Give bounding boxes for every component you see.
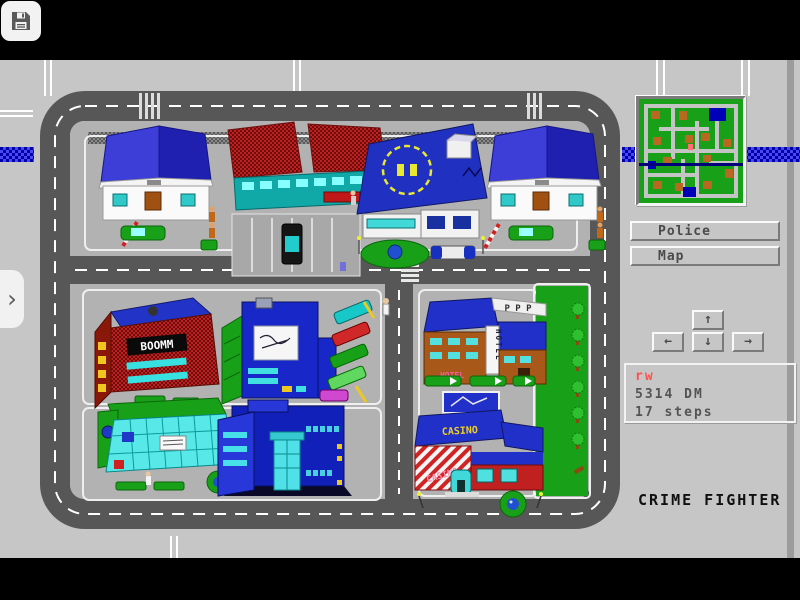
save-button[interactable] bbox=[1, 1, 41, 41]
road-exit-line bbox=[663, 60, 665, 96]
game-screen: BOOMM bbox=[0, 60, 800, 558]
road-exit-line bbox=[0, 115, 33, 117]
save-icon bbox=[9, 9, 33, 33]
money-amount: 5314 DM bbox=[635, 386, 785, 404]
road-exit-line bbox=[748, 60, 750, 96]
game-window: BOOMM bbox=[0, 0, 800, 600]
police-car bbox=[431, 246, 475, 259]
move-down-button[interactable]: ↓ bbox=[692, 332, 724, 352]
minimap-stripe bbox=[639, 163, 743, 166]
game-title: CRIME FIGHTER bbox=[638, 491, 781, 509]
player-name: rw bbox=[635, 368, 785, 386]
casino-roof-sign: CASINO bbox=[442, 425, 479, 438]
street-arrows bbox=[425, 376, 535, 386]
crosswalk bbox=[527, 93, 542, 119]
minimap bbox=[636, 96, 746, 206]
map-button[interactable]: Map bbox=[630, 246, 780, 266]
move-left-button[interactable]: ← bbox=[652, 332, 684, 352]
step-counter: 17 steps bbox=[635, 404, 785, 422]
pedestrian bbox=[351, 191, 357, 206]
pedestrian bbox=[383, 298, 389, 315]
minimap-canvas bbox=[639, 99, 743, 203]
park bbox=[536, 286, 588, 496]
bezel-shade bbox=[787, 60, 794, 558]
blue-stripe bbox=[0, 147, 34, 162]
building-police-station bbox=[357, 124, 487, 268]
road-exit-line bbox=[656, 60, 658, 96]
parking-roof-sign: P P P bbox=[504, 304, 532, 314]
move-up-button[interactable]: ↑ bbox=[692, 310, 724, 330]
sidebar-toggle[interactable]: › bbox=[0, 270, 24, 328]
city-map: BOOMM bbox=[33, 76, 625, 540]
chevron-right-icon: › bbox=[7, 285, 17, 313]
status-panel: rw 5314 DM 17 steps bbox=[624, 363, 796, 423]
police-button[interactable]: Police bbox=[630, 221, 780, 241]
move-right-button[interactable]: → bbox=[732, 332, 764, 352]
road-exit-line bbox=[0, 110, 33, 112]
road-exit-line bbox=[741, 60, 743, 96]
minimap-player-dot bbox=[688, 144, 693, 150]
building-hotel: P P P HOTEL HOTEL bbox=[424, 298, 546, 384]
building-nightclub bbox=[218, 400, 352, 496]
